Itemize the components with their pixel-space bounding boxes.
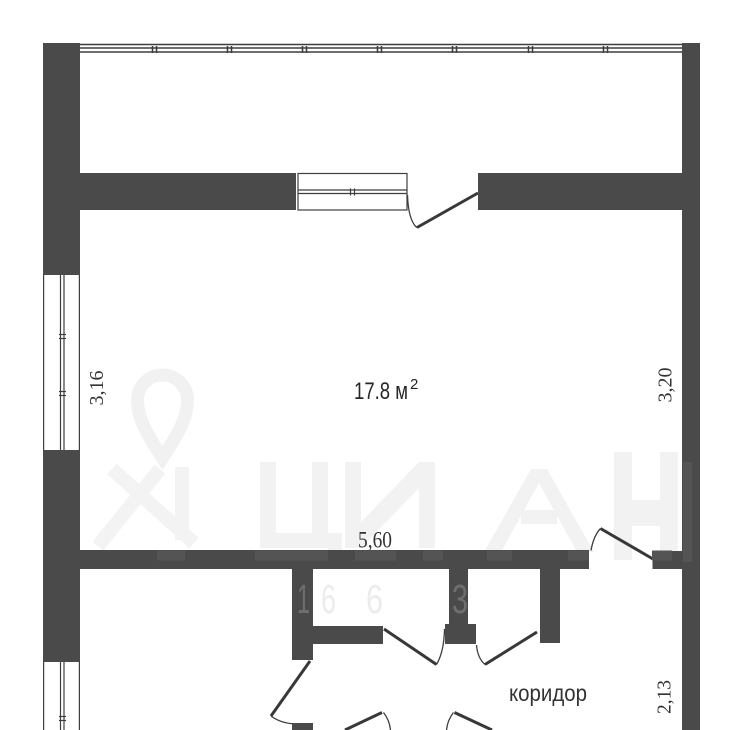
svg-text:3,20: 3,20 bbox=[655, 368, 677, 403]
svg-text:5,60: 5,60 bbox=[358, 528, 392, 553]
svg-text:3,16: 3,16 bbox=[86, 371, 108, 406]
svg-text:1: 1 bbox=[297, 576, 310, 622]
svg-text:6: 6 bbox=[366, 576, 383, 622]
svg-text:2,13: 2,13 bbox=[654, 680, 676, 714]
svg-text:3: 3 bbox=[452, 576, 468, 622]
svg-text:коридор: коридор bbox=[509, 680, 587, 706]
svg-text:6: 6 bbox=[321, 576, 336, 622]
svg-text:2: 2 bbox=[410, 376, 418, 393]
svg-text:17.8 м: 17.8 м bbox=[354, 378, 408, 405]
